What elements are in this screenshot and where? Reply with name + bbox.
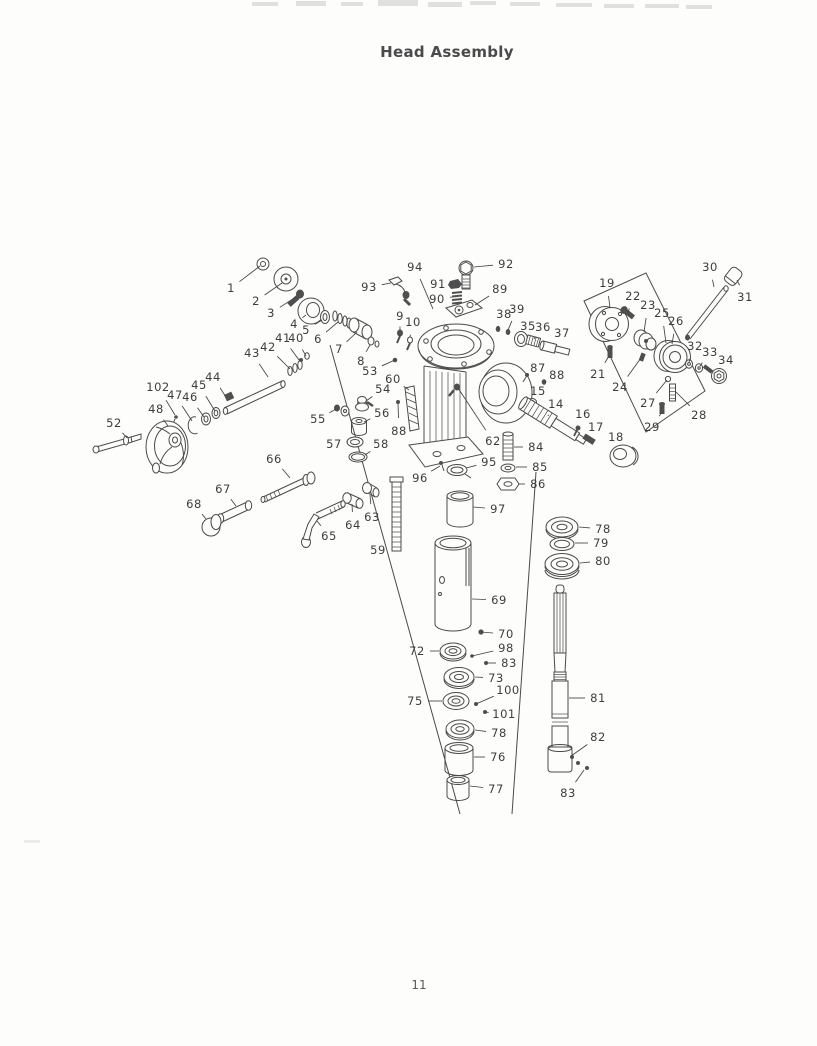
assembly-diagram (0, 0, 817, 1046)
drawing-depth-stop-rod (390, 477, 403, 551)
reference-lines (330, 273, 705, 814)
manual-page: Head Assembly (0, 0, 817, 1046)
drawing-spline-shaft (548, 585, 589, 772)
drawing-top-bolt-group (446, 261, 482, 317)
drawing-clamp-handle-cluster (302, 483, 380, 548)
drawing-upper-left-shaft-parts (257, 258, 413, 350)
drawing-quill-group (435, 491, 484, 635)
drawing-left-adjust-shaft (173, 353, 309, 434)
page-number: 11 (411, 978, 426, 992)
drawing-oiler-fitting (389, 277, 410, 305)
drawing-center-bearing-stack (440, 643, 488, 801)
drawing-right-bearing-stack (545, 517, 579, 579)
scan-artifact-strip (24, 0, 712, 843)
drawing-lock-bolt-cluster (202, 472, 315, 536)
drawing-handwheel (93, 421, 188, 473)
